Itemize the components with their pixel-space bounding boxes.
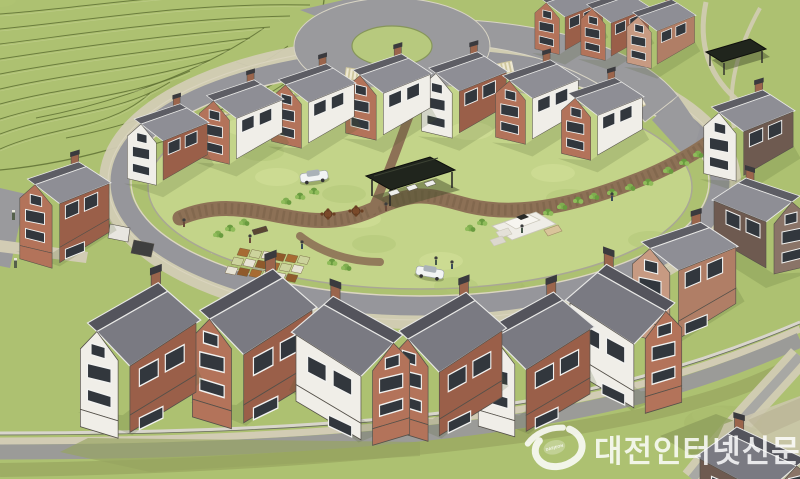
publisher-name: 대전인터넷신문 — [594, 434, 800, 470]
architectural-rendering: DAEJEON 대전인터넷신문 — [0, 0, 800, 479]
site-plan-rendering: DAEJEON 대전인터넷신문 — [0, 0, 800, 479]
